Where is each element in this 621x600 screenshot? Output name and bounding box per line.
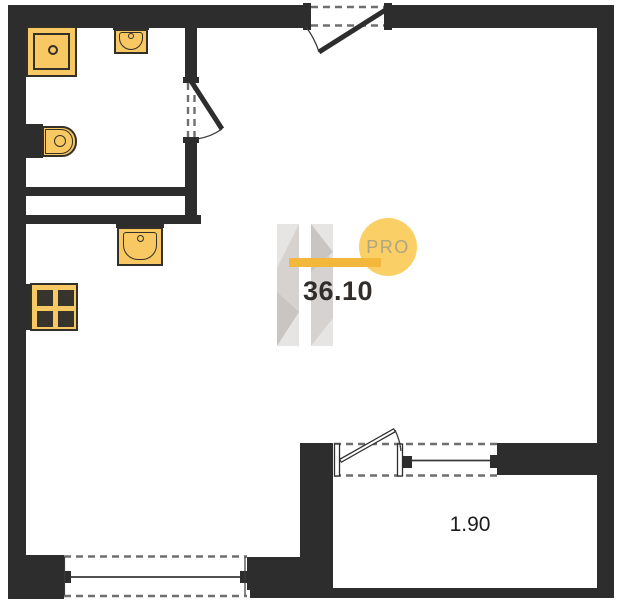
sink-faucet: [137, 235, 144, 242]
bottom-left-wall-block: [8, 555, 64, 599]
entry-door-post-right: [384, 3, 392, 30]
watermark-facet: [311, 224, 333, 262]
balcony-side-wall: [300, 443, 333, 590]
logo-accent-bar: [289, 258, 381, 267]
balcony-area-label: 1.90: [400, 513, 540, 537]
bathroom-door-post-top: [183, 77, 199, 83]
stove-burner: [37, 311, 53, 327]
bathroom-door-leaf: [191, 81, 222, 129]
top-wall-right: [391, 5, 614, 28]
balcony-door-leaf: [340, 430, 395, 461]
watermark-facet: [311, 224, 333, 272]
bathroom-door-arc: [197, 129, 222, 139]
stove-burner: [58, 311, 74, 327]
watermark-facet: [277, 224, 299, 268]
total-area-label: 36.10: [268, 276, 408, 307]
basin-faucet: [128, 33, 134, 39]
entry-door-arc: [306, 27, 319, 52]
bathroom-wall-upper: [185, 28, 197, 77]
balcony-wall-right-block: [497, 443, 597, 475]
balcony-window-sash: [403, 456, 412, 468]
bathroom-door-post-bottom: [183, 137, 199, 143]
bottom-window-post-right: [240, 571, 247, 583]
watermark-facet: [311, 318, 333, 346]
top-wall-left: [8, 5, 303, 28]
toilet-hole: [54, 135, 66, 147]
balcony-door-frame-left: [335, 444, 340, 476]
pro-badge-label: PRO: [366, 237, 410, 257]
pro-badge-circle: [359, 218, 417, 276]
bottom-window-post-left: [64, 571, 71, 583]
bathroom-wall-lower: [185, 143, 197, 224]
entry-door-leaf: [319, 9, 387, 52]
shower-drain: [48, 45, 58, 55]
floor-plan: PRO 36.10 1.90: [0, 0, 621, 600]
balcony-door-arc: [395, 430, 401, 451]
bathroom-bottom-wall: [26, 187, 185, 196]
left-wall: [8, 5, 26, 557]
balcony-door-frame-right: [398, 444, 403, 476]
right-wall: [597, 5, 614, 598]
toilet-cistern: [26, 124, 43, 158]
partition-wall: [26, 215, 201, 224]
stove-burner: [58, 290, 74, 306]
watermark-facet: [277, 312, 299, 346]
balcony-door-leaf-core: [341, 431, 394, 461]
stove-burner: [37, 290, 53, 306]
entry-door-post-left: [303, 3, 311, 30]
balcony-window-post: [490, 455, 497, 468]
balcony-left-rail: [323, 475, 326, 588]
